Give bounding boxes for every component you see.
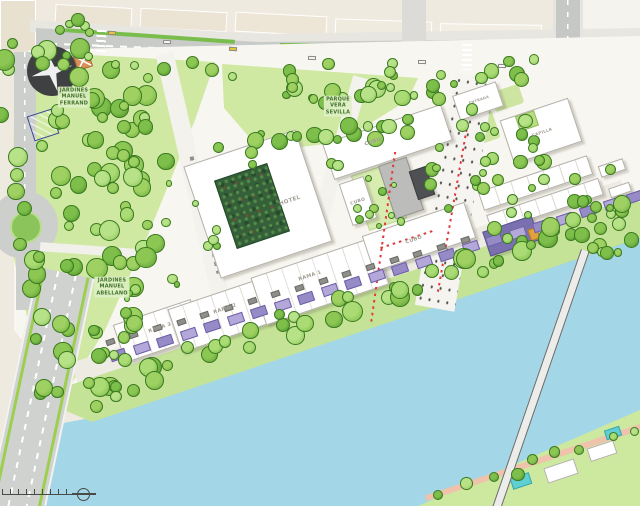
tree-icon <box>130 61 139 70</box>
tree-icon <box>10 168 24 182</box>
tree-icon <box>538 174 550 186</box>
tree-icon <box>376 223 382 229</box>
tree-icon <box>142 220 153 231</box>
tree-icon <box>424 178 436 190</box>
tree-icon <box>492 174 504 186</box>
tree-icon <box>391 281 409 299</box>
tree-icon <box>432 92 445 105</box>
tree-icon <box>71 13 84 26</box>
tree-icon <box>143 73 153 83</box>
tree-icon <box>386 83 395 92</box>
tree-icon <box>17 201 32 216</box>
tree-icon <box>318 129 334 145</box>
tree-icon <box>426 79 440 93</box>
park-label-line: SEVILLA <box>326 109 350 115</box>
tree-icon <box>475 72 488 85</box>
tree-icon <box>502 233 513 244</box>
tree-icon <box>412 284 424 296</box>
tree-icon <box>7 38 19 50</box>
tree-icon <box>425 264 439 278</box>
tree-icon <box>456 249 477 270</box>
tree-icon <box>69 67 89 87</box>
tree-icon <box>50 187 62 199</box>
tree-icon <box>57 58 70 71</box>
tree-icon <box>205 63 219 77</box>
tree-icon <box>513 155 527 169</box>
tree-icon <box>145 371 164 390</box>
park-label-line: MANUEL <box>60 94 88 100</box>
tree-icon <box>503 56 514 67</box>
tree-icon <box>402 114 413 125</box>
tree-icon <box>400 125 415 140</box>
tree-icon <box>309 94 318 103</box>
tree-icon <box>161 218 171 228</box>
tree-icon <box>36 140 49 153</box>
tree-icon <box>332 160 343 171</box>
tree-icon <box>587 213 597 223</box>
tree-icon <box>518 114 533 129</box>
tree-layer <box>0 0 640 506</box>
tree-icon <box>186 56 199 69</box>
tree-icon <box>7 183 25 201</box>
tree-icon <box>83 377 95 389</box>
tree-icon <box>8 147 28 167</box>
tree-icon <box>388 212 395 219</box>
tree-icon <box>529 54 540 65</box>
tree-icon <box>333 135 342 144</box>
tree-icon <box>157 153 174 170</box>
tree-icon <box>118 331 131 344</box>
tree-icon <box>613 195 631 213</box>
tree-icon <box>609 432 618 441</box>
tree-icon <box>118 353 132 367</box>
tree-icon <box>528 184 536 192</box>
tree-icon <box>450 80 458 88</box>
tree-icon <box>33 308 51 326</box>
tree-icon <box>248 160 257 169</box>
tree-icon <box>384 66 396 78</box>
tree-icon <box>381 119 397 135</box>
tree-icon <box>0 107 9 124</box>
tree-icon <box>157 62 171 76</box>
tree-icon <box>342 301 363 322</box>
tree-icon <box>120 207 135 222</box>
tree-icon <box>456 119 469 132</box>
tree-icon <box>477 266 489 278</box>
tree-icon <box>516 128 529 141</box>
tree-icon <box>181 341 194 354</box>
tree-icon <box>606 204 614 212</box>
tree-icon <box>97 112 108 123</box>
tree-icon <box>64 221 74 231</box>
tree-icon <box>30 333 43 346</box>
tree-icon <box>506 207 517 218</box>
tree-icon <box>360 86 377 103</box>
site-plan-canvas: JARDINES MANUEL FERRAND PARQUE VERA SEVI… <box>0 0 640 506</box>
tree-icon <box>87 131 105 149</box>
tree-icon <box>166 180 173 187</box>
tree-icon <box>526 240 537 251</box>
tree-icon <box>52 315 70 333</box>
tree-icon <box>138 119 154 135</box>
tree-icon <box>322 58 335 71</box>
tree-icon <box>91 348 107 364</box>
tree-icon <box>397 217 406 226</box>
tree-icon <box>325 311 343 329</box>
tree-icon <box>84 52 93 61</box>
tree-icon <box>614 248 622 256</box>
tree-icon <box>242 322 259 339</box>
tree-icon <box>507 194 519 206</box>
tree-icon <box>565 212 581 228</box>
tree-icon <box>487 221 502 236</box>
tree-icon <box>435 143 444 152</box>
tree-icon <box>111 60 120 69</box>
tree-icon <box>99 220 120 241</box>
tree-icon <box>600 246 613 259</box>
tree-icon <box>287 82 297 92</box>
tree-icon <box>51 386 64 399</box>
tree-icon <box>110 391 122 403</box>
tree-icon <box>213 142 224 153</box>
north-arrow-line <box>72 493 96 495</box>
tree-icon <box>228 72 237 81</box>
tree-icon <box>245 146 258 159</box>
tree-icon <box>88 325 100 337</box>
tree-icon <box>55 25 65 35</box>
tree-icon <box>212 225 221 234</box>
tree-icon <box>162 360 173 371</box>
tree-icon <box>466 103 478 115</box>
tree-icon <box>475 132 485 142</box>
tree-icon <box>13 238 27 252</box>
tree-icon <box>219 335 232 348</box>
tree-icon <box>174 281 180 287</box>
north-arrow-icon <box>77 488 90 501</box>
tree-icon <box>444 204 453 213</box>
tree-icon <box>541 217 560 236</box>
tree-icon <box>35 56 50 71</box>
tree-icon <box>243 341 256 354</box>
tree-icon <box>340 117 358 135</box>
tree-icon <box>490 127 499 136</box>
tree-icon <box>51 166 71 186</box>
tree-icon <box>192 200 199 207</box>
tree-icon <box>527 454 538 465</box>
tree-icon <box>35 379 53 397</box>
park-label-jardines-abellano: JARDINES MANUEL ABELLANO <box>94 277 129 298</box>
scale-bar <box>2 489 72 495</box>
tree-icon <box>394 90 410 106</box>
tree-icon <box>436 70 446 80</box>
tree-icon <box>612 217 626 231</box>
tree-icon <box>605 164 616 175</box>
tree-icon <box>391 182 397 188</box>
tree-icon <box>63 205 80 222</box>
tree-icon <box>365 210 374 219</box>
tree-icon <box>365 175 372 182</box>
tree-icon <box>90 400 104 414</box>
tree-icon <box>493 255 504 266</box>
tree-icon <box>355 215 364 224</box>
tree-icon <box>460 477 473 490</box>
tree-icon <box>594 222 607 235</box>
tree-icon <box>135 247 157 269</box>
tree-icon <box>577 195 590 208</box>
park-label-parque-vera: PARQUE VERA SEVILLA <box>324 96 352 117</box>
tree-icon <box>624 232 640 248</box>
tree-icon <box>363 121 374 132</box>
tree-icon <box>127 384 140 397</box>
tree-icon <box>433 490 443 500</box>
tree-icon <box>85 28 94 37</box>
park-label-line: MANUEL <box>96 284 127 290</box>
tree-icon <box>480 156 491 167</box>
tree-icon <box>590 201 602 213</box>
park-label-line: ABELLANO <box>96 290 127 296</box>
tree-icon <box>549 446 561 458</box>
tree-icon <box>630 427 640 437</box>
tree-icon <box>480 122 490 132</box>
tree-icon <box>514 72 529 87</box>
tree-icon <box>574 445 584 455</box>
tree-icon <box>113 255 128 270</box>
tree-icon <box>528 143 538 153</box>
tree-icon <box>489 472 499 482</box>
tree-icon <box>58 351 76 369</box>
tree-icon <box>479 169 488 178</box>
park-label-jardines-ferrand: JARDINES MANUEL FERRAND <box>58 87 90 108</box>
tree-icon <box>524 211 532 219</box>
tree-icon <box>70 176 88 194</box>
park-label-line: FERRAND <box>60 100 88 106</box>
tree-icon <box>511 468 524 481</box>
tree-icon <box>410 91 419 100</box>
tree-icon <box>378 187 387 196</box>
tree-icon <box>432 164 440 172</box>
tree-icon <box>569 173 581 185</box>
tree-icon <box>574 227 589 242</box>
tree-icon <box>296 315 314 333</box>
tree-icon <box>292 131 303 142</box>
